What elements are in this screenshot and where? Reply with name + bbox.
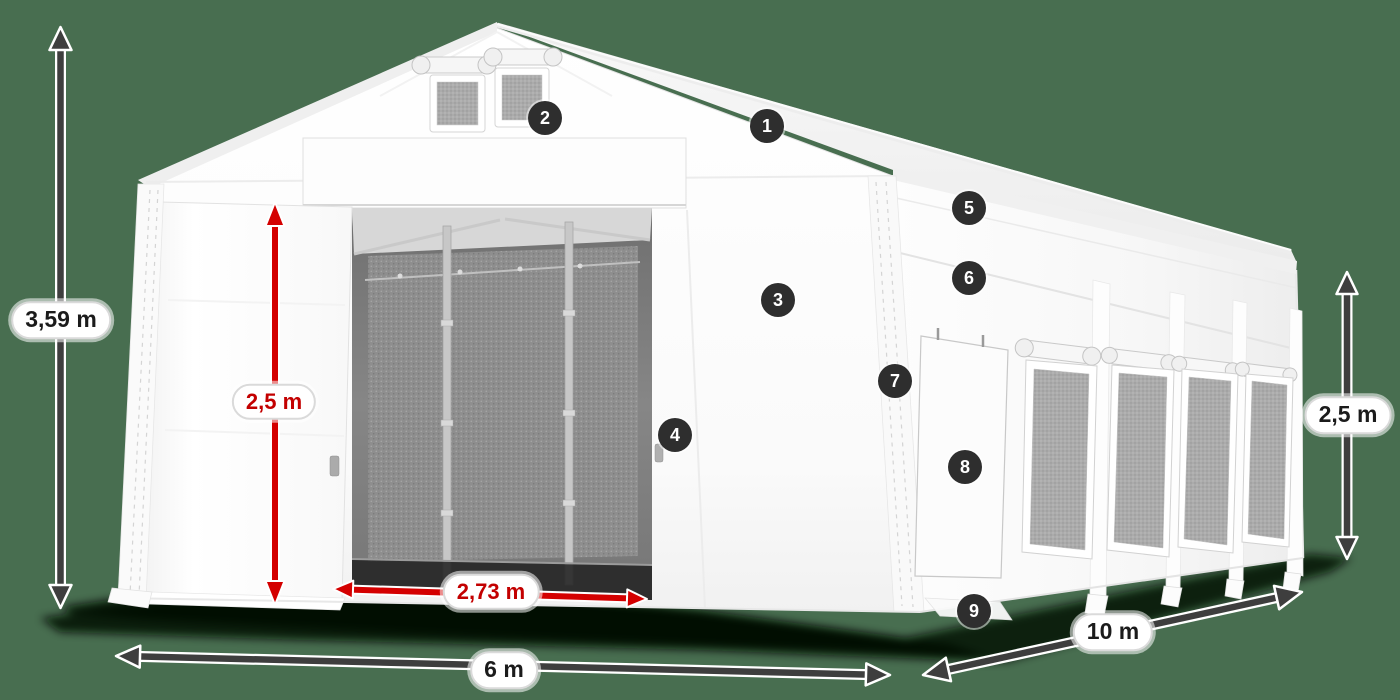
callout-badge-7: 7	[878, 364, 912, 398]
callout-badge-6: 6	[952, 261, 986, 295]
side-windows	[1014, 338, 1298, 559]
callout-badge-5: 5	[952, 191, 986, 225]
interior-pole	[441, 226, 453, 586]
dimension-label-front-width: 6 m	[470, 651, 538, 689]
tent-product-diagram: 3,59 m 2,5 m 2,73 m 6 m 10 m 2,5 m 1 2 3…	[0, 0, 1400, 700]
callout-badge-3: 3	[761, 283, 795, 317]
dimension-label-side-length: 10 m	[1073, 613, 1153, 651]
callout-badge-9: 9	[957, 594, 991, 628]
interior-pole	[563, 222, 575, 585]
callout-badge-2: 2	[528, 101, 562, 135]
dimension-label-side-height: 2,5 m	[1305, 396, 1392, 434]
door-lintel	[303, 138, 686, 208]
dimension-label-total-height: 3,59 m	[11, 301, 111, 339]
callout-badge-1: 1	[750, 109, 784, 143]
tent-illustration	[0, 0, 1400, 700]
front-door-opening	[352, 208, 652, 600]
callout-badge-4: 4	[658, 418, 692, 452]
door-handle	[330, 456, 339, 476]
dimension-label-door-width: 2,73 m	[443, 574, 540, 610]
callout-badge-8: 8	[948, 450, 982, 484]
dimension-label-door-height: 2,5 m	[232, 384, 316, 420]
